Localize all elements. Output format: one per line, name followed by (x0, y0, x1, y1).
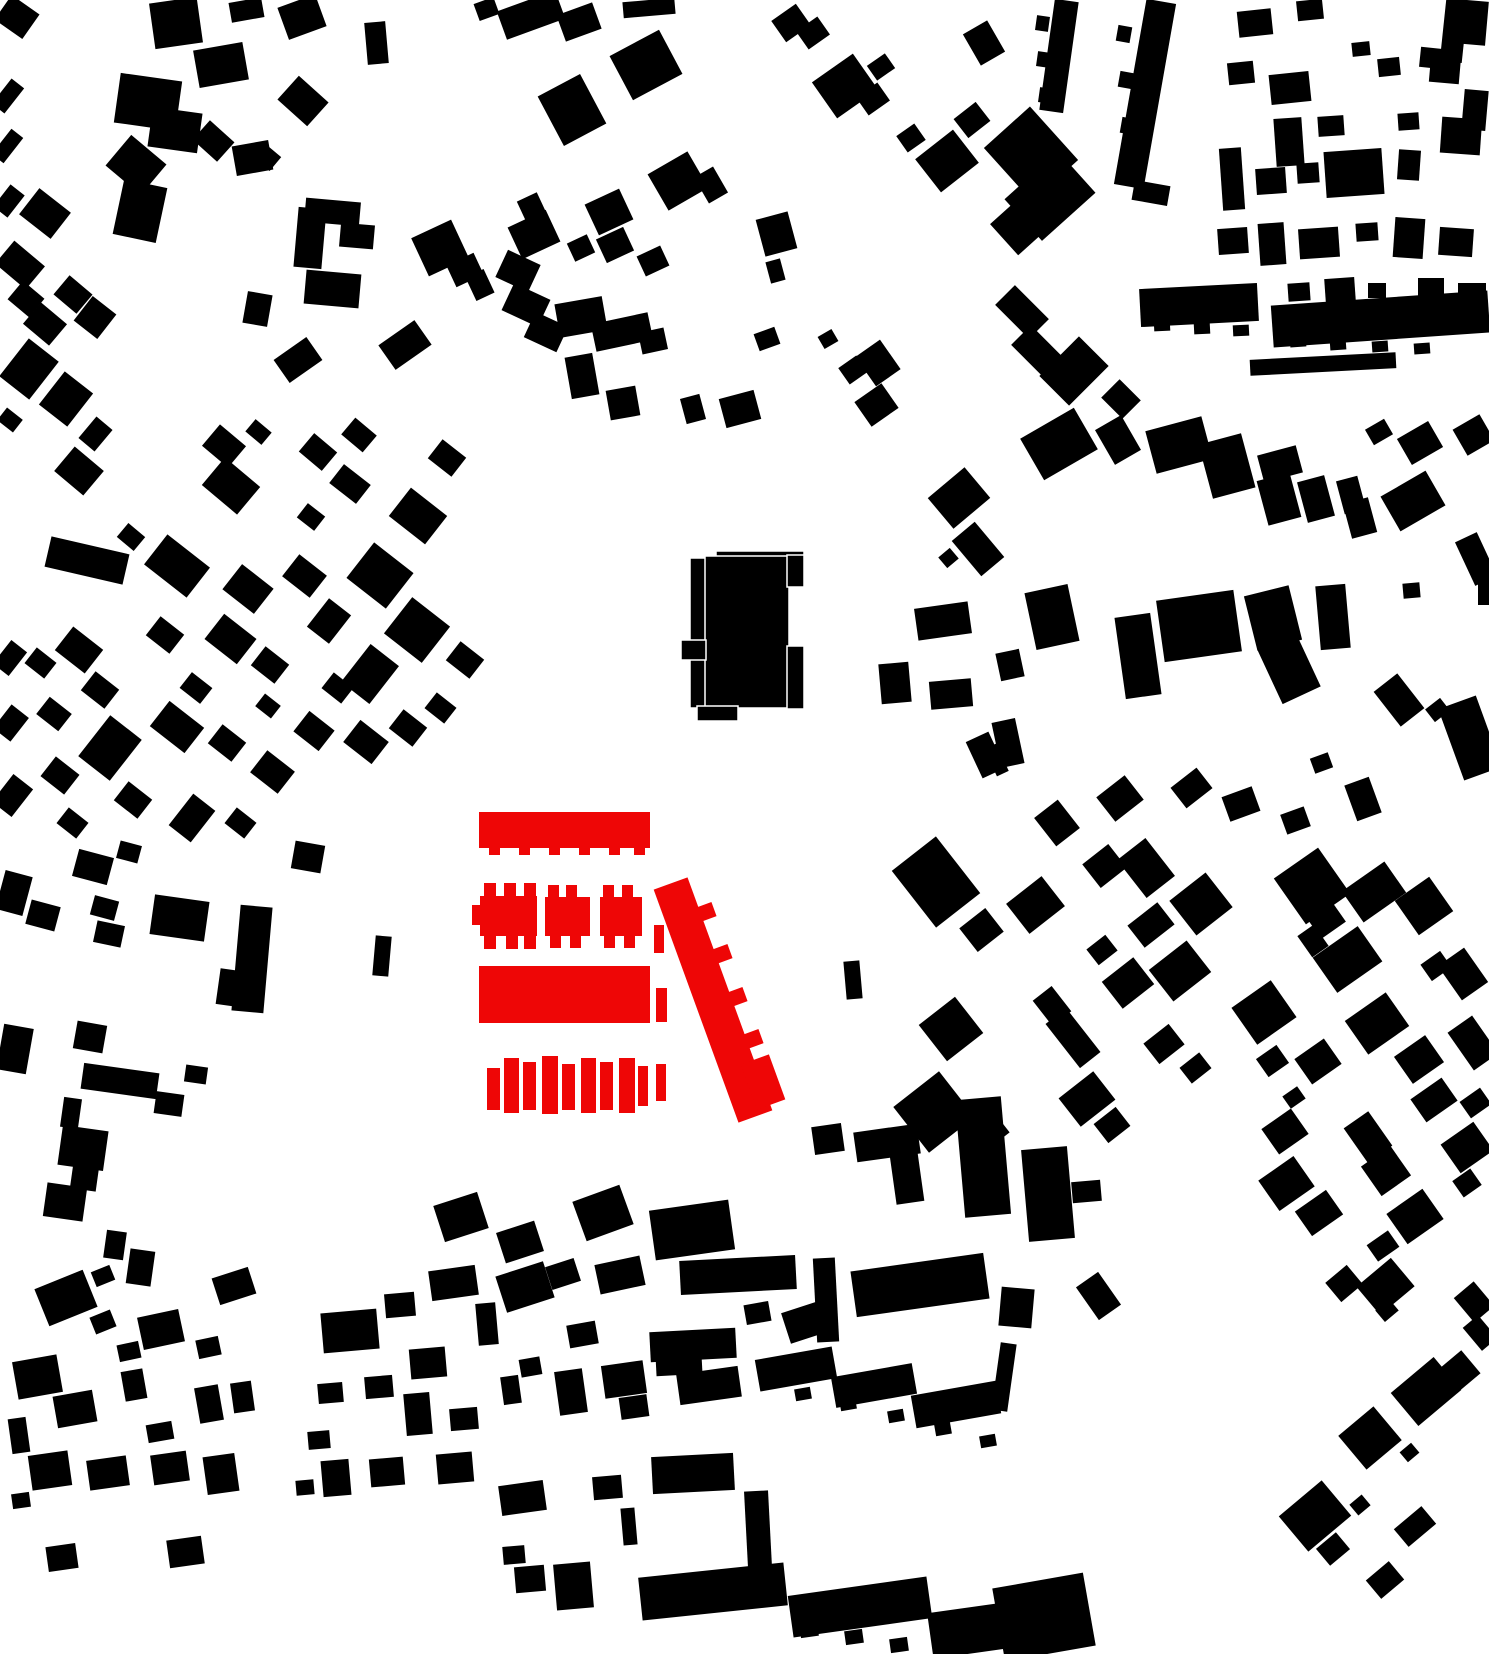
building-footprint (169, 794, 216, 843)
building-footprint (554, 1368, 588, 1415)
building-footprint (91, 1265, 116, 1287)
building-footprint (538, 74, 607, 146)
building-footprint (887, 1409, 905, 1424)
highlighted-building (550, 934, 561, 948)
building-footprint (601, 1360, 647, 1399)
building-footprint (1154, 320, 1171, 332)
building-footprint (1261, 1108, 1308, 1154)
building-footprint (867, 53, 895, 80)
building-footprint (184, 1065, 208, 1085)
building-footprint (295, 1479, 314, 1496)
building-footprint (1323, 148, 1384, 198)
highlighted-building (523, 1062, 536, 1110)
building-footprint (514, 1565, 546, 1594)
building-footprint (149, 894, 209, 941)
building-footprint (1217, 227, 1249, 255)
building-footprint (1233, 325, 1250, 337)
building-footprint (78, 715, 142, 781)
building-footprint (204, 614, 256, 664)
building-footprint (919, 997, 984, 1062)
building-footprint (637, 246, 670, 277)
building-footprint (498, 1480, 547, 1516)
building-footprint (1290, 335, 1307, 347)
building-footprint (914, 601, 972, 640)
building-footprint (389, 709, 427, 746)
building-footprint (850, 1253, 989, 1317)
highlighted-building (656, 1064, 666, 1101)
building-footprint (0, 640, 27, 676)
building-footprint (1386, 1189, 1443, 1245)
building-footprint (1330, 338, 1347, 350)
highlighted-building (619, 1058, 635, 1113)
highlighted-building (524, 883, 536, 897)
building-footprint (126, 1248, 156, 1286)
building-footprint (343, 720, 389, 764)
building-footprint (24, 647, 56, 678)
building-footprint (428, 439, 466, 476)
central-building-part (690, 558, 706, 708)
building-footprint (36, 697, 72, 732)
highlighted-building (581, 1058, 596, 1113)
building-footprint (979, 1434, 997, 1449)
building-footprint (1038, 87, 1053, 104)
building-footprint (889, 1637, 909, 1653)
building-footprint (794, 1387, 812, 1402)
building-footprint (765, 258, 785, 283)
building-footprint (245, 419, 271, 445)
highlighted-building (519, 845, 530, 855)
building-footprint (1338, 1406, 1402, 1469)
building-footprint (428, 1265, 479, 1301)
highlighted-building (634, 845, 645, 855)
building-footprint (1127, 902, 1174, 947)
building-footprint (500, 1375, 522, 1405)
building-footprint (1452, 1168, 1481, 1197)
building-footprint (1149, 940, 1211, 1001)
building-footprint (998, 1287, 1034, 1329)
building-footprint (1410, 1078, 1457, 1123)
building-footprint (556, 2, 601, 41)
highlighted-building (579, 845, 590, 855)
building-footprint (1397, 421, 1443, 465)
building-footprint (232, 140, 274, 176)
building-footprint (963, 20, 1005, 65)
highlighted-building (609, 845, 620, 855)
highlighted-building (604, 934, 615, 948)
building-footprint (799, 1622, 819, 1638)
building-footprint (638, 1562, 788, 1620)
building-footprint (1219, 147, 1245, 210)
building-footprint (1123, 161, 1140, 179)
building-footprint (1120, 117, 1137, 135)
building-footprint (1273, 117, 1304, 167)
site-plan-svg (0, 0, 1489, 1654)
building-footprint (1179, 1052, 1211, 1083)
building-footprint (146, 616, 184, 653)
building-footprint (927, 1603, 1005, 1654)
building-footprint (1351, 41, 1370, 57)
building-footprint (878, 662, 911, 704)
highlighted-building (524, 934, 536, 949)
building-footprint (1006, 876, 1065, 934)
building-footprint (1096, 775, 1143, 822)
highlighted-building (489, 845, 500, 855)
building-footprint (496, 1221, 544, 1264)
building-footprint (610, 30, 683, 100)
building-footprint (1020, 408, 1098, 481)
building-footprint (938, 548, 958, 568)
building-footprint (955, 1096, 1011, 1218)
building-footprint (519, 1356, 543, 1377)
building-footprint (144, 534, 210, 597)
building-footprint (56, 807, 88, 838)
building-footprint (216, 968, 249, 1008)
building-footprint (1324, 277, 1356, 303)
building-footprint (1296, 162, 1319, 183)
building-footprint (497, 0, 566, 40)
building-footprint (346, 542, 413, 608)
building-footprint (329, 464, 371, 504)
building-footprint (755, 1346, 837, 1391)
building-footprint (78, 417, 112, 452)
building-footprint (117, 523, 145, 551)
building-footprint (567, 234, 595, 261)
building-footprint (1132, 180, 1171, 206)
building-footprint (1315, 584, 1350, 650)
building-footprint (952, 522, 1005, 577)
building-footprint (222, 564, 273, 614)
building-footprint (1118, 71, 1135, 89)
figure-ground-map (0, 0, 1489, 1654)
building-footprint (1116, 25, 1133, 43)
building-footprint (86, 1455, 130, 1490)
central-building-part (681, 640, 706, 660)
building-footprint (1231, 980, 1296, 1044)
building-footprint (620, 1507, 637, 1545)
building-footprint (25, 900, 60, 932)
central-building-part (787, 646, 804, 709)
building-footprint (34, 1270, 97, 1327)
building-footprint (1454, 1281, 1489, 1322)
building-footprint (291, 841, 325, 874)
building-footprint (403, 1392, 433, 1436)
building-footprint (339, 223, 375, 250)
building-footprint (1374, 673, 1425, 726)
building-footprint (1438, 227, 1474, 257)
building-footprint (1342, 862, 1406, 923)
building-footprint (1298, 227, 1340, 260)
building-footprint (818, 329, 839, 349)
building-footprint (1237, 8, 1274, 37)
building-footprint (307, 1430, 330, 1450)
building-footprint (1282, 1086, 1305, 1109)
building-footprint (230, 1381, 255, 1414)
building-footprint (194, 1384, 224, 1424)
building-footprint (250, 750, 295, 794)
building-footprint (1280, 806, 1311, 834)
building-footprint (293, 207, 326, 269)
building-footprint (384, 1292, 416, 1319)
building-footprint (195, 1336, 221, 1359)
building-footprint (307, 598, 351, 644)
building-footprint (39, 371, 93, 426)
building-footprint (12, 1354, 63, 1399)
building-footprint (1478, 573, 1489, 605)
building-footprint (282, 554, 327, 598)
highlighted-building (484, 883, 496, 897)
building-footprint (364, 1375, 394, 1399)
building-footprint (474, 0, 500, 21)
building-footprint (606, 386, 641, 421)
building-footprint (995, 649, 1024, 681)
building-footprint (1397, 112, 1419, 130)
building-footprint (1310, 752, 1333, 774)
building-footprint (150, 1451, 190, 1486)
building-footprint (446, 641, 484, 678)
building-footprint (1296, 0, 1324, 21)
building-footprint (81, 1063, 160, 1099)
highlighted-building (603, 885, 614, 898)
building-footprint (1441, 1122, 1489, 1174)
building-footprint (929, 678, 973, 710)
building-footprint (372, 935, 391, 976)
building-footprint (1034, 800, 1080, 847)
highlighted-building (566, 885, 577, 898)
building-footprint (1295, 1190, 1343, 1236)
building-footprint (1438, 695, 1489, 780)
building-footprint (892, 836, 980, 927)
building-footprint (1372, 340, 1389, 352)
building-footprint (0, 774, 33, 817)
building-footprint (1325, 1265, 1363, 1302)
building-footprint (212, 1267, 257, 1305)
building-footprint (1394, 1035, 1444, 1084)
building-footprint (1287, 282, 1310, 301)
building-footprint (1377, 57, 1401, 77)
building-footprint (317, 1382, 344, 1404)
building-footprint (1448, 1016, 1489, 1071)
highlighted-building (480, 896, 537, 936)
building-footprint (341, 644, 399, 704)
building-footprint (1402, 582, 1420, 598)
building-footprint (202, 457, 260, 514)
building-footprint (1366, 1561, 1404, 1599)
central-building-part (697, 706, 738, 721)
building-footprint (0, 129, 23, 163)
building-footprint (0, 78, 24, 113)
building-footprint (193, 42, 249, 88)
building-footprint (811, 1123, 845, 1155)
building-footprint (1222, 786, 1261, 821)
highlighted-building (570, 934, 581, 948)
building-footprint (166, 1536, 205, 1569)
building-footprint (844, 1629, 864, 1645)
building-footprint (277, 0, 326, 40)
building-footprint (224, 807, 256, 838)
highlighted-building (484, 934, 496, 949)
highlighted-building (549, 845, 560, 855)
building-footprint (1317, 115, 1344, 137)
building-footprint (843, 960, 862, 999)
building-footprint (364, 21, 389, 65)
building-footprint (341, 418, 377, 453)
building-footprint (81, 671, 119, 708)
building-footprint (89, 1310, 116, 1335)
building-footprint (622, 0, 675, 18)
building-footprint (572, 1185, 633, 1242)
building-footprint (1397, 149, 1421, 180)
building-footprint (1453, 414, 1489, 455)
building-footprint (475, 1302, 499, 1346)
building-footprint (299, 433, 337, 471)
highlighted-building (548, 885, 559, 898)
highlighted-building (624, 934, 635, 948)
building-footprint (433, 1192, 488, 1242)
highlighted-building (622, 885, 633, 898)
building-footprint (1297, 475, 1335, 523)
building-footprint (995, 285, 1049, 339)
highlighted-building (487, 1068, 500, 1110)
building-footprint (137, 1309, 185, 1350)
building-footprint (1460, 1088, 1489, 1119)
building-footprint (991, 1342, 1016, 1412)
building-footprint (53, 1390, 98, 1428)
building-footprint (103, 1230, 127, 1261)
building-footprint (45, 536, 130, 584)
building-footprint (73, 1021, 107, 1054)
building-footprint (890, 1151, 925, 1204)
building-footprint (0, 1024, 34, 1075)
building-footprint (436, 1451, 474, 1484)
building-footprint (1102, 957, 1154, 1008)
building-footprint (1294, 1038, 1341, 1084)
building-footprint (147, 107, 202, 154)
building-footprint (585, 189, 634, 236)
building-footprint (1258, 1156, 1314, 1211)
building-footprint (277, 76, 328, 127)
building-footprint (180, 672, 213, 704)
highlighted-building (600, 1062, 613, 1110)
building-footprint (320, 1309, 379, 1354)
building-footprint (8, 1417, 31, 1454)
building-footprint (43, 1182, 87, 1221)
building-footprint (1250, 352, 1397, 376)
building-footprint (1368, 283, 1386, 298)
highlighted-building (504, 883, 516, 897)
building-footprint (1395, 877, 1453, 935)
building-footprint (54, 447, 104, 496)
building-footprint (1086, 935, 1117, 966)
building-footprint (1117, 838, 1175, 898)
building-footprint (409, 1346, 447, 1379)
building-footprint (1365, 419, 1393, 446)
building-footprint (651, 1453, 735, 1494)
building-footprint (679, 1255, 797, 1295)
building-footprint (896, 123, 925, 152)
highlighted-building (506, 934, 518, 949)
building-footprint (959, 908, 1003, 952)
building-footprint (1036, 51, 1051, 68)
building-footprint (502, 1545, 525, 1565)
building-footprint (304, 270, 362, 309)
building-footprint (384, 597, 450, 663)
building-footprint (744, 1490, 772, 1567)
building-footprint (72, 849, 114, 885)
building-footprint (1076, 1272, 1121, 1320)
building-footprint (1440, 117, 1482, 156)
highlighted-building (479, 966, 650, 1023)
building-footprint (19, 188, 71, 239)
building-footprint (1393, 217, 1426, 259)
building-footprint (566, 1321, 599, 1349)
building-footprint (1367, 1230, 1400, 1261)
highlighted-building (654, 925, 664, 953)
building-footprint (1400, 1443, 1420, 1463)
building-footprint (1227, 61, 1255, 86)
building-footprint (1345, 992, 1409, 1054)
building-footprint (1344, 777, 1381, 822)
building-footprint (1414, 342, 1431, 354)
building-footprint (60, 1097, 82, 1129)
highlighted-building (545, 897, 590, 936)
building-footprint (389, 488, 447, 545)
building-footprint (1258, 222, 1287, 266)
building-footprint (146, 1421, 175, 1443)
building-footprint (1035, 15, 1050, 32)
building-footprint (1024, 584, 1079, 650)
building-footprint (1170, 768, 1212, 809)
building-footprint (855, 340, 900, 387)
building-footprint (154, 1091, 185, 1117)
building-footprint (0, 870, 33, 916)
building-footprint (113, 179, 168, 243)
highlighted-building (600, 897, 642, 936)
building-footprint (0, 704, 29, 741)
building-footprint (992, 1573, 1095, 1654)
highlighted-building (479, 812, 650, 848)
building-footprint (28, 1450, 72, 1490)
building-footprint (297, 503, 325, 531)
building-footprint (40, 756, 79, 794)
building-footprint (1443, 0, 1489, 46)
building-footprint (90, 895, 119, 921)
building-footprint (320, 1459, 351, 1497)
building-footprint (1343, 497, 1377, 539)
building-footprint (1256, 1045, 1289, 1077)
building-footprint (592, 1475, 623, 1500)
building-footprint (424, 692, 456, 723)
building-footprint (954, 102, 991, 138)
building-footprint (150, 701, 204, 753)
building-footprint (369, 1457, 405, 1488)
building-footprint (0, 408, 23, 433)
building-footprint (203, 1453, 240, 1495)
building-footprint (1095, 415, 1141, 465)
central-building-part (787, 555, 804, 587)
highlighted-building (656, 988, 667, 1022)
building-footprint (1394, 1506, 1436, 1547)
building-footprint (1194, 323, 1211, 335)
building-footprint (1438, 948, 1488, 1001)
building-footprint (116, 1341, 141, 1362)
highlighted-building (638, 1066, 648, 1106)
central-building-part (705, 556, 789, 708)
building-footprint (208, 724, 246, 761)
building-footprint (242, 291, 272, 327)
building-footprint (93, 920, 125, 947)
building-footprint (553, 1561, 594, 1610)
building-footprint (854, 383, 898, 427)
